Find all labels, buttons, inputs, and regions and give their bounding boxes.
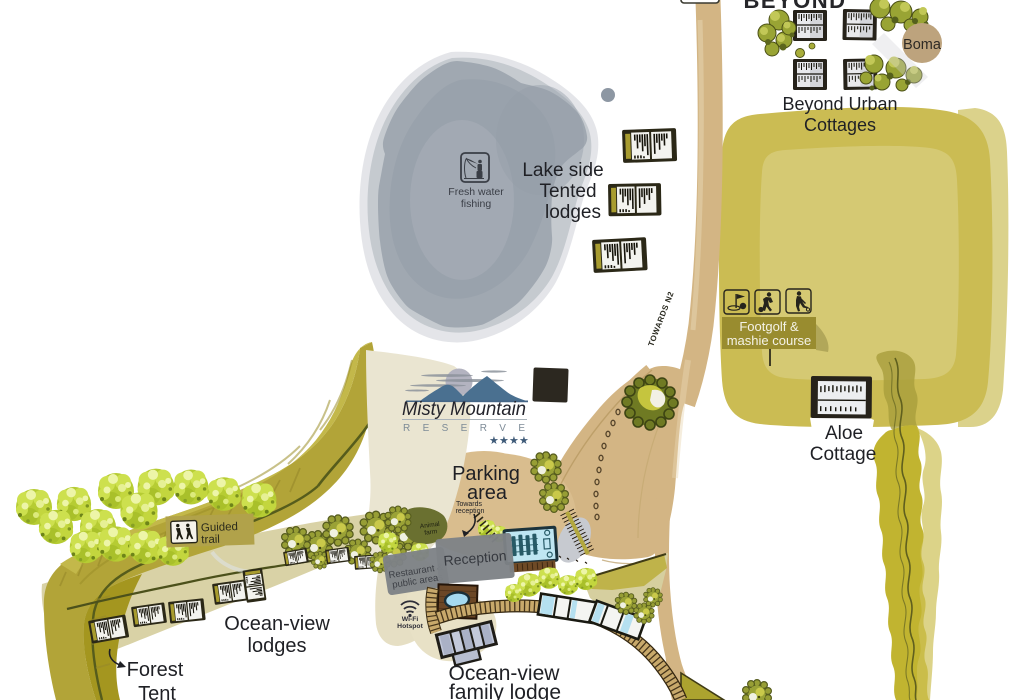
svg-text:Hotspot: Hotspot — [397, 623, 423, 630]
svg-text:lodges: lodges — [248, 635, 307, 657]
svg-text:Ocean-view: Ocean-view — [224, 613, 330, 635]
svg-text:★: ★ — [489, 435, 499, 447]
svg-text:Footgolf &: Footgolf & — [739, 319, 799, 334]
svg-text:Boma: Boma — [903, 37, 942, 53]
svg-text:fishing: fishing — [461, 198, 492, 210]
svg-text:lodges: lodges — [545, 202, 601, 223]
svg-text:BEYOND: BEYOND — [743, 0, 846, 13]
svg-text:Guided: Guided — [201, 521, 238, 534]
svg-text:Fresh water: Fresh water — [448, 186, 504, 198]
svg-text:★: ★ — [509, 435, 519, 447]
svg-text:reception: reception — [456, 508, 485, 515]
svg-text:Tent: Tent — [138, 683, 176, 700]
svg-text:mashie course: mashie course — [727, 333, 812, 348]
svg-text:★: ★ — [519, 435, 529, 447]
svg-text:Cottages: Cottages — [804, 115, 876, 135]
svg-text:Cottage: Cottage — [810, 444, 877, 465]
svg-text:Misty Mountain: Misty Mountain — [402, 399, 526, 420]
svg-text:trail: trail — [201, 534, 220, 547]
svg-text:Forest: Forest — [127, 659, 184, 681]
svg-text:Tented: Tented — [539, 181, 596, 202]
svg-text:★: ★ — [499, 435, 509, 447]
svg-text:Beyond Urban: Beyond Urban — [782, 94, 897, 114]
svg-text:Lake side: Lake side — [522, 160, 603, 181]
svg-text:Wi-Fi: Wi-Fi — [402, 616, 419, 623]
svg-text:Towards: Towards — [456, 501, 483, 508]
svg-text:Aloe: Aloe — [825, 423, 863, 444]
svg-text:family lodge: family lodge — [449, 681, 561, 700]
